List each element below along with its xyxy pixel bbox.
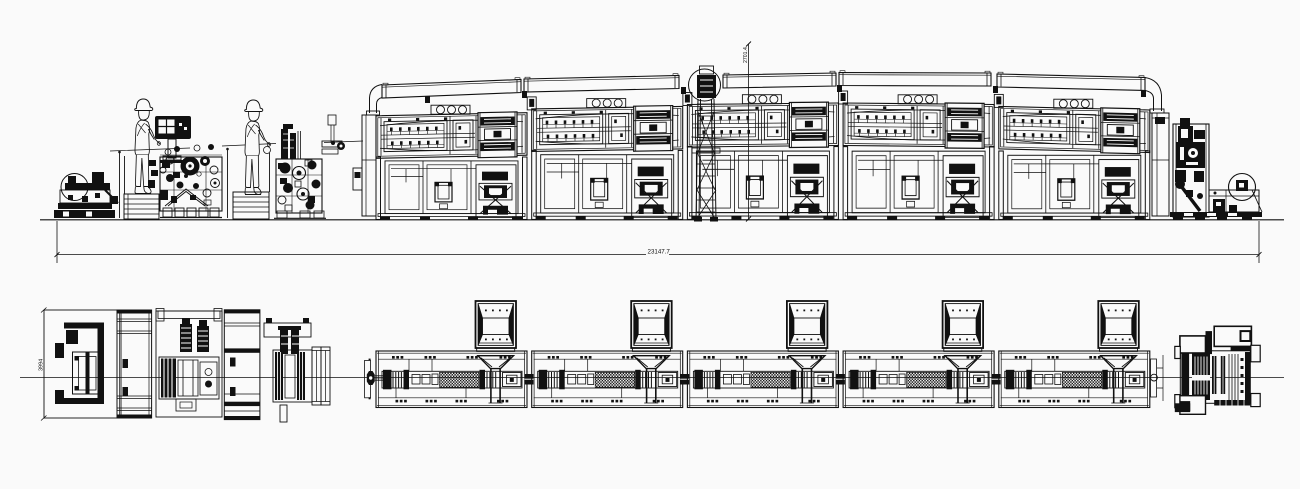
svg-text:2701.4: 2701.4: [743, 47, 749, 63]
svg-text:23147.7: 23147.7: [648, 249, 671, 256]
